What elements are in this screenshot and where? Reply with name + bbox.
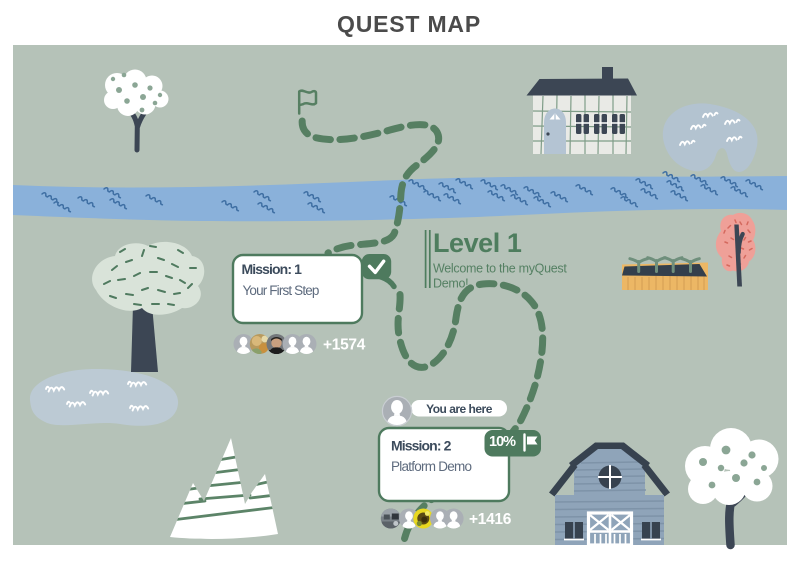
svg-text:Mission: 2: Mission: 2 — [391, 438, 452, 454]
svg-text:+1416: +1416 — [469, 511, 512, 528]
svg-text:Level 1: Level 1 — [433, 228, 522, 258]
svg-text:You are here: You are here — [426, 402, 493, 416]
svg-text:10%: 10% — [489, 434, 516, 450]
svg-text:Demo!: Demo! — [433, 277, 468, 291]
svg-text:Platform Demo: Platform Demo — [391, 459, 472, 474]
svg-text:Welcome to the myQuest: Welcome to the myQuest — [433, 262, 567, 276]
svg-text:Your First Step: Your First Step — [243, 283, 319, 298]
svg-text:Mission: 1: Mission: 1 — [242, 261, 303, 277]
svg-text:+1574: +1574 — [323, 337, 366, 354]
